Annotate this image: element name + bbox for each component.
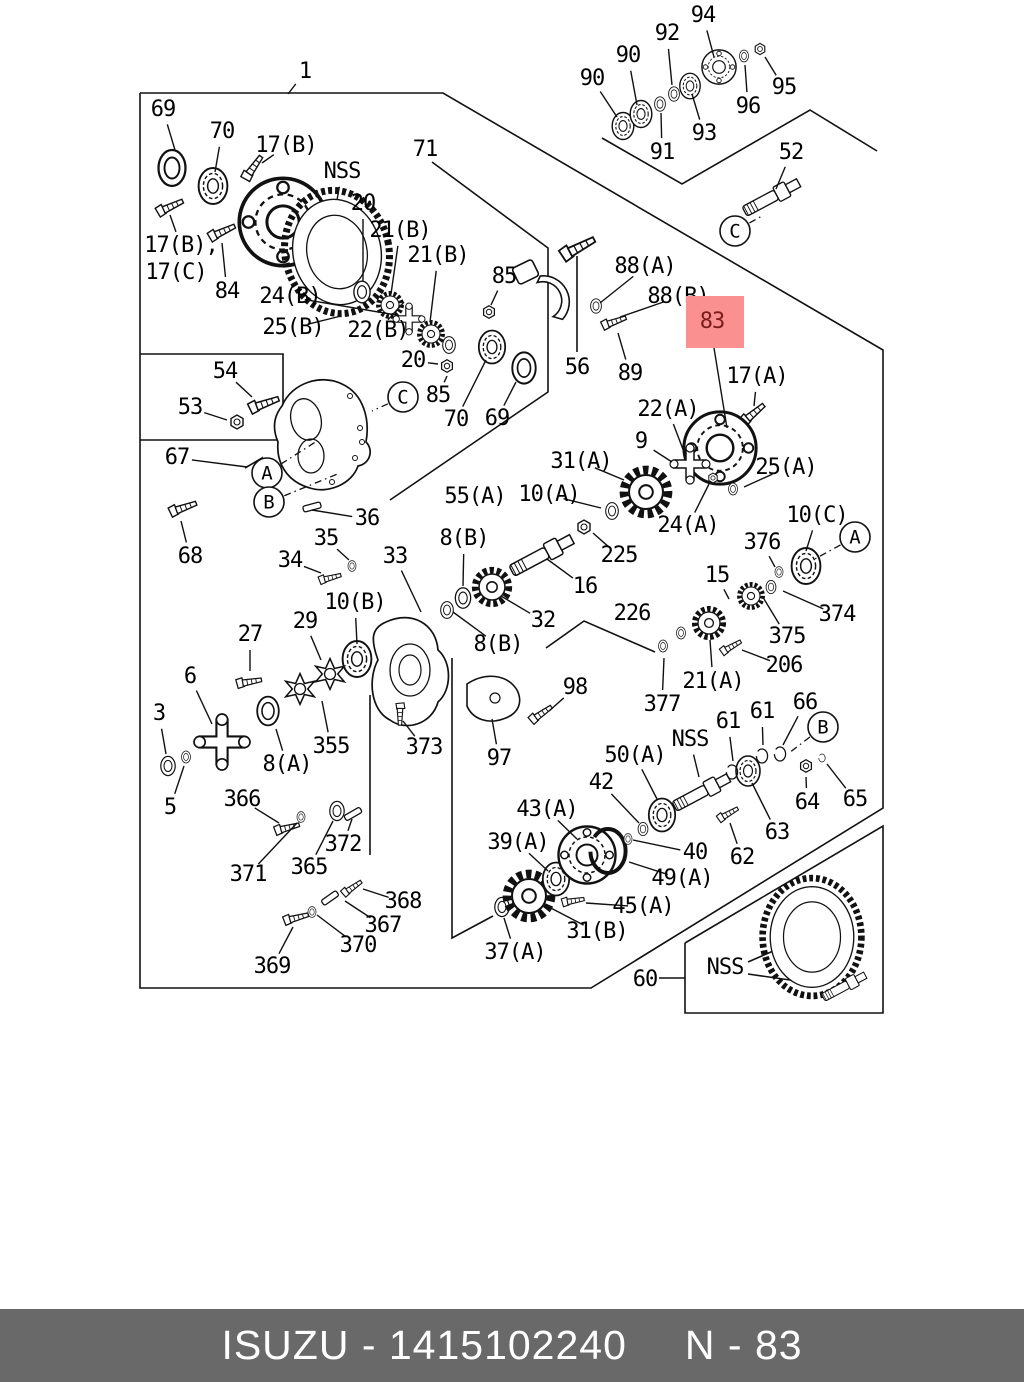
part-number-labels: 1697017(B)NSS712021(B)21(B)17(B),17(C)84… xyxy=(144,3,867,992)
leader-line xyxy=(222,243,225,277)
star-part-glyph xyxy=(286,674,315,705)
part-label: 39(A) xyxy=(487,830,548,855)
part-label: 373 xyxy=(406,735,443,760)
part-label: 40 xyxy=(683,840,708,865)
nut-part-glyph xyxy=(442,360,453,373)
leader-line xyxy=(730,737,733,761)
nut-part-glyph xyxy=(231,415,243,429)
part-label: 36 xyxy=(355,506,380,531)
bearing-part-glyph xyxy=(792,548,821,584)
leader-line xyxy=(391,246,398,294)
part-label: 20 xyxy=(351,191,376,216)
leader-line xyxy=(695,484,709,513)
leader-line xyxy=(661,113,662,138)
part-label: 10(A) xyxy=(518,482,579,507)
part-label: 71 xyxy=(413,137,438,162)
washer-part-glyph xyxy=(182,751,191,763)
leader-line xyxy=(401,571,421,612)
part-label: 17(B) xyxy=(255,133,316,158)
leader-line xyxy=(745,65,747,92)
leader-line xyxy=(692,94,700,120)
leader-line xyxy=(501,596,530,613)
footer-brand-partnumber: ISUZU - 1415102240 xyxy=(221,1322,626,1369)
part-label: 374 xyxy=(819,602,856,627)
part-label: 55(A) xyxy=(444,484,505,509)
washer-part-glyph xyxy=(443,337,456,354)
snap-part-glyph xyxy=(819,754,825,762)
part-label: 54 xyxy=(213,359,238,384)
ref-letter: B xyxy=(817,717,828,739)
part-label: 60 xyxy=(633,967,658,992)
part-label: 371 xyxy=(230,862,267,887)
part-label: 94 xyxy=(691,3,716,28)
gear-part-glyph xyxy=(475,570,509,604)
pin-part-glyph xyxy=(344,807,363,821)
part-label: 355 xyxy=(313,734,350,759)
shaft-part-glyph xyxy=(508,531,576,579)
part-label: 65 xyxy=(843,787,868,812)
part-label: 35 xyxy=(314,526,339,551)
footer-page-ref: N - 83 xyxy=(685,1322,803,1369)
washer-part-glyph xyxy=(669,87,680,101)
leader-line xyxy=(175,766,184,794)
bolt-part-glyph xyxy=(236,674,263,688)
part-label: 67 xyxy=(165,445,190,470)
part-label: 56 xyxy=(565,355,590,380)
star-part-glyph xyxy=(316,659,345,690)
part-label: 52 xyxy=(779,140,804,165)
washer-part-glyph xyxy=(655,97,666,111)
part-label: 42 xyxy=(589,770,614,795)
leader-line xyxy=(762,727,763,745)
part-label: 5 xyxy=(164,795,176,820)
washer-part-glyph xyxy=(354,281,370,303)
leader-line xyxy=(428,363,438,364)
part-label: 9 xyxy=(635,429,647,454)
leader-line xyxy=(600,276,633,303)
washer-part-glyph xyxy=(659,640,668,652)
part-label: 92 xyxy=(655,21,680,46)
part-label: 16 xyxy=(573,574,598,599)
part-label: 24(A) xyxy=(657,513,718,538)
gear-part-glyph xyxy=(624,470,668,514)
part-label: 8(A) xyxy=(263,752,312,777)
leader-line xyxy=(694,755,699,777)
part-label: 49(A) xyxy=(651,866,712,891)
washer-part-glyph xyxy=(308,907,316,918)
bearing-part-glyph xyxy=(649,799,675,832)
part-label: 90 xyxy=(616,43,641,68)
leader-line xyxy=(764,599,779,624)
part-label: 376 xyxy=(744,530,781,555)
nut-part-glyph xyxy=(755,43,765,54)
bolt-part-glyph xyxy=(340,878,363,898)
leader-line xyxy=(204,413,227,420)
washer-part-glyph xyxy=(512,352,535,383)
part-label: 85 xyxy=(492,264,517,289)
part-label: 88(A) xyxy=(614,254,675,279)
part-label: 372 xyxy=(325,832,362,857)
bolt-part-glyph xyxy=(719,637,743,656)
bearing-part-glyph xyxy=(736,756,760,786)
part-label: 61 xyxy=(716,709,741,734)
leader-line xyxy=(304,566,321,573)
blob33-part-glyph xyxy=(372,618,448,726)
washer-part-glyph xyxy=(740,50,749,62)
part-label: 377 xyxy=(644,692,681,717)
shaft-part-glyph xyxy=(671,771,733,814)
washer-part-glyph xyxy=(624,834,632,845)
part-label: 21(B) xyxy=(407,243,468,268)
gear-part-glyph xyxy=(739,584,762,607)
leader-line xyxy=(754,392,755,406)
part-label: 375 xyxy=(769,624,806,649)
catalog-footer-bar: ISUZU - 1415102240 N - 83 xyxy=(0,1309,1024,1382)
part-label: 8(B) xyxy=(440,526,489,551)
leader-line xyxy=(600,92,617,117)
part-label: 366 xyxy=(224,787,261,812)
part-label: 91 xyxy=(650,140,675,165)
bearing-part-glyph xyxy=(630,101,652,128)
washer-part-glyph xyxy=(606,503,619,520)
leader-line xyxy=(549,698,564,711)
bolt-part-glyph xyxy=(561,894,585,907)
ref-letter: C xyxy=(729,221,740,243)
washer-part-glyph xyxy=(638,822,648,835)
part-label: 69 xyxy=(485,406,510,431)
washer-part-glyph xyxy=(257,697,279,726)
leader-line xyxy=(783,591,823,609)
nut-part-glyph xyxy=(578,520,590,534)
part-label: 225 xyxy=(601,543,638,568)
leader-line xyxy=(654,450,672,462)
ref-letter: A xyxy=(849,527,861,549)
bolt-part-glyph xyxy=(528,702,554,725)
part-drawings xyxy=(155,43,868,1003)
washer-part-glyph xyxy=(766,580,776,593)
leader-line xyxy=(547,559,573,578)
washer-part-glyph xyxy=(775,567,783,578)
leader-line xyxy=(631,71,637,105)
washer-part-glyph xyxy=(455,588,470,608)
washer-part-glyph xyxy=(161,756,175,775)
boundary-line xyxy=(140,354,283,440)
part-label: 43(A) xyxy=(516,797,577,822)
leader-line xyxy=(492,719,496,744)
part-label: 3 xyxy=(153,701,165,726)
exploded-parts-diagram: 1697017(B)NSS712021(B)21(B)17(B),17(C)84… xyxy=(0,0,1024,1309)
part-label: 45(A) xyxy=(612,894,673,919)
parts-catalog-page: 1697017(B)NSS712021(B)21(B)17(B),17(C)84… xyxy=(0,0,1024,1382)
part-label: 8(B) xyxy=(474,632,523,657)
part-label: 64 xyxy=(795,790,820,815)
crescent-part-glyph xyxy=(511,255,572,326)
part-label: 68 xyxy=(178,544,203,569)
leader-line xyxy=(663,658,664,690)
part-label: 15 xyxy=(705,563,730,588)
leader-line xyxy=(192,460,247,467)
part-label: 66 xyxy=(793,690,818,715)
part-label: 50(A) xyxy=(604,743,665,768)
leader-line xyxy=(769,556,775,567)
part-label: 62 xyxy=(730,845,755,870)
part-label: 93 xyxy=(692,121,717,146)
ref-letter: C xyxy=(397,387,408,409)
bolt-part-glyph xyxy=(155,196,185,218)
bolt-part-glyph xyxy=(282,910,309,926)
part-label: 22(A) xyxy=(637,397,698,422)
leader-line xyxy=(196,691,212,724)
leader-line xyxy=(668,49,672,85)
part-label: 21(B) xyxy=(369,218,430,243)
leader-line xyxy=(444,376,447,382)
part-label: 17(B), xyxy=(144,233,217,258)
part-label: 1 xyxy=(299,59,311,84)
leader-line xyxy=(491,291,498,305)
part-label: 90 xyxy=(580,66,605,91)
flange-part-glyph xyxy=(702,50,736,84)
bolt-part-glyph xyxy=(168,498,198,518)
bearing-part-glyph xyxy=(343,641,372,677)
blob97-part-glyph xyxy=(467,676,520,721)
part-label: 32 xyxy=(531,608,556,633)
part-label: 25(A) xyxy=(755,455,816,480)
leader-line xyxy=(765,57,776,75)
leader-line xyxy=(279,927,293,954)
part-label: 10(C) xyxy=(786,503,847,528)
part-label: 22(B) xyxy=(347,318,408,343)
leader-line xyxy=(827,764,846,788)
leader-line xyxy=(504,382,516,406)
leader-line xyxy=(322,701,328,732)
part-label: NSS xyxy=(324,159,361,184)
washer-part-glyph xyxy=(159,150,186,186)
part-label: 98 xyxy=(563,675,588,700)
part-label: 29 xyxy=(293,609,318,634)
nut-part-glyph xyxy=(484,306,495,319)
leader-line xyxy=(618,333,626,360)
part-label: 226 xyxy=(614,601,651,626)
leader-line xyxy=(311,636,321,660)
part-label: 89 xyxy=(618,361,643,386)
leader-line xyxy=(430,271,436,322)
part-label: NSS xyxy=(672,727,709,752)
part-label: 61 xyxy=(750,699,775,724)
cross-part-glyph xyxy=(194,714,250,770)
part-label: 17(A) xyxy=(726,364,787,389)
part-label: 21(A) xyxy=(682,669,743,694)
part-label: 34 xyxy=(278,548,303,573)
washer-part-glyph xyxy=(591,299,602,313)
leader-line xyxy=(611,794,639,823)
leader-line xyxy=(752,783,770,820)
leader-line xyxy=(673,424,684,452)
washer-part-glyph xyxy=(729,483,738,495)
part-label: 369 xyxy=(254,954,291,979)
part-label: 370 xyxy=(340,933,377,958)
ref-letter: A xyxy=(261,463,273,485)
leader-line xyxy=(633,840,680,850)
snap-part-glyph xyxy=(774,747,785,761)
part-label: 6 xyxy=(184,664,196,689)
part-label: 97 xyxy=(487,746,512,771)
bearing-part-glyph xyxy=(479,331,505,364)
leader-line xyxy=(724,589,729,599)
bolt-part-glyph xyxy=(318,570,342,584)
bearing-part-glyph xyxy=(680,73,700,99)
part-label: 69 xyxy=(151,97,176,122)
bolt-part-glyph xyxy=(247,393,280,415)
leader-line xyxy=(463,554,464,586)
part-label: 31(B) xyxy=(566,919,627,944)
leader-line xyxy=(167,124,175,150)
part-label: 25(B) xyxy=(262,315,323,340)
part-label: 53 xyxy=(178,395,203,420)
part-label: 24(B) xyxy=(259,284,320,309)
part-label: 365 xyxy=(291,855,328,880)
part-label: 70 xyxy=(444,407,469,432)
leader-line xyxy=(312,510,352,517)
washer-part-glyph xyxy=(441,602,454,619)
part-label: 37(A) xyxy=(484,940,545,965)
part-label: 20 xyxy=(401,348,426,373)
bolt-part-glyph xyxy=(716,804,740,823)
leader-line xyxy=(463,360,486,407)
boundary-line xyxy=(390,162,548,500)
leader-line xyxy=(642,769,657,799)
shaft-part-glyph xyxy=(741,176,803,219)
leader-line xyxy=(529,853,548,871)
leader-line xyxy=(783,716,798,745)
part-label: 95 xyxy=(772,75,797,100)
bearing-part-glyph xyxy=(199,168,228,204)
gear-part-glyph xyxy=(419,322,442,345)
gear-part-glyph xyxy=(695,609,724,638)
leader-line xyxy=(504,918,511,939)
part-label: 17(C) xyxy=(145,260,206,285)
nut-part-glyph xyxy=(709,473,717,483)
part-label: 85 xyxy=(426,383,451,408)
part-label: 27 xyxy=(238,622,263,647)
part-label: 206 xyxy=(766,653,803,678)
nut-part-glyph xyxy=(801,760,812,773)
snap-part-glyph xyxy=(756,749,767,763)
part-label: 96 xyxy=(736,94,761,119)
leader-line xyxy=(162,729,166,754)
leader-line xyxy=(710,640,712,667)
highlighted-part-label: 83 xyxy=(700,309,725,334)
leader-line xyxy=(181,521,186,542)
part-label: 10(B) xyxy=(324,590,385,615)
leader-line xyxy=(236,382,252,397)
part-label: 84 xyxy=(215,279,240,304)
leader-line xyxy=(337,549,349,560)
leader-line xyxy=(170,215,176,232)
part-label: 63 xyxy=(765,820,790,845)
washer-part-glyph xyxy=(677,627,686,639)
washer-part-glyph xyxy=(348,561,356,572)
washer-part-glyph xyxy=(330,801,344,820)
part-label: 31(A) xyxy=(550,449,611,474)
washer-part-glyph xyxy=(297,812,305,823)
part-label: 368 xyxy=(385,889,422,914)
part-label: NSS xyxy=(707,955,744,980)
pin-part-glyph xyxy=(321,890,339,905)
blob55-part-glyph xyxy=(275,380,371,490)
leader-line xyxy=(276,729,283,751)
part-label: 70 xyxy=(210,119,235,144)
part-label: 33 xyxy=(383,544,408,569)
ref-letter: B xyxy=(263,492,274,514)
leader-line xyxy=(730,823,737,844)
